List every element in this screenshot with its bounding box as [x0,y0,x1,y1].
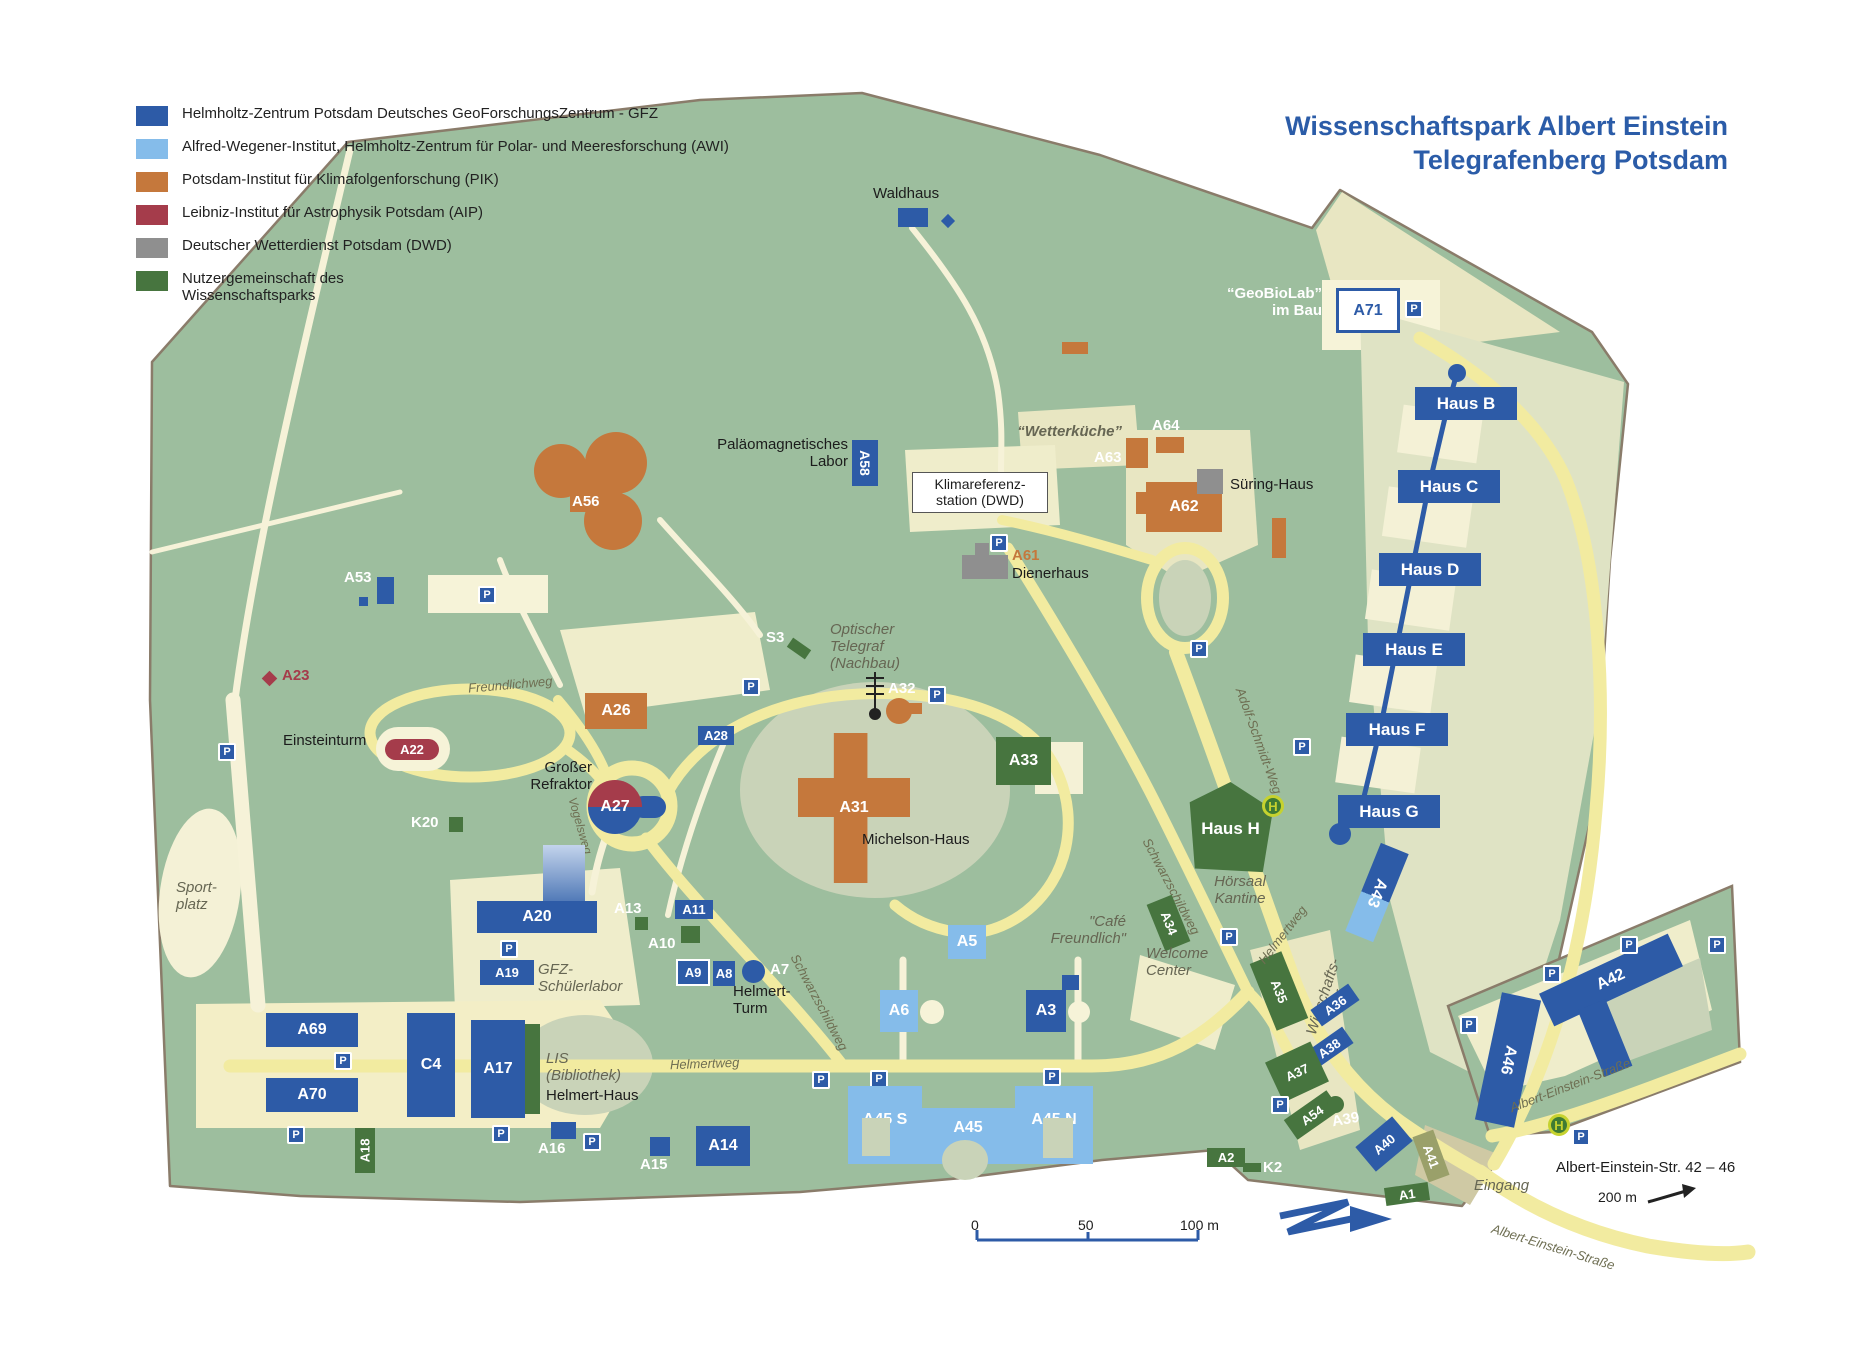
building-a11: A11 [675,900,713,919]
label-a61: A61 [1012,548,1040,565]
building-a3-annex [1062,975,1079,990]
parking-icon: P [1190,640,1208,658]
building-a26: A26 [585,693,647,729]
label-a13: A13 [614,901,642,918]
campus-map: Helmholtz-Zentrum Potsdam Deutsches GeoF… [0,0,1870,1360]
building-haus-g: Haus G [1338,795,1440,828]
building-a58: A58 [852,440,878,486]
label-hoersaal-kantine: Hörsaal Kantine [1205,874,1275,908]
building-a45n-court [1043,1118,1073,1158]
arrow-200m-icon [1648,1184,1696,1202]
legend: Helmholtz-Zentrum Potsdam Deutsches GeoF… [136,106,729,317]
building-a16 [551,1122,576,1139]
building-haus-c: Haus C [1398,470,1500,503]
label-dienerhaus: Dienerhaus [1012,566,1089,583]
legend-label: Leibniz-Institut für Astrophysik Potsdam… [182,205,483,222]
label-helmert-turm: Helmert- Turm [733,984,791,1018]
label-k2: K2 [1263,1160,1282,1177]
label-lis-bibliothek: LIS (Bibliothek) [546,1051,621,1085]
legend-swatch-gfz [136,106,168,126]
building-a32-stub [908,703,922,714]
label-sportplatz: Sport- platz [176,880,217,914]
label-albert-einstein-str-42-46: Albert-Einstein-Str. 42 – 46 [1556,1160,1735,1177]
building-a14: A14 [696,1126,750,1166]
label-geobiolab: “GeoBioLab” im Bau [1180,286,1322,320]
building-a71: A71 [1336,288,1400,333]
building-suering-dwd [1197,469,1223,494]
building-k20 [449,817,463,832]
label-a64: A64 [1152,418,1180,435]
bus-stop-icon: H [1262,795,1284,817]
parking-icon: P [583,1133,601,1151]
building-a19: A19 [480,960,534,985]
building-haus-d: Haus D [1379,553,1481,586]
parking-icon: P [928,686,946,704]
parking-icon: P [1043,1068,1061,1086]
building-k2 [1243,1163,1261,1172]
label-suering-haus: Süring-Haus [1230,477,1313,494]
legend-item: Deutscher Wetterdienst Potsdam (DWD) [136,238,729,258]
parking-icon: P [500,940,518,958]
page-title: Wissenschaftspark Albert Einstein Telegr… [1285,110,1728,178]
parking-icon: P [1405,300,1423,318]
bus-stop-icon: H [1548,1114,1570,1136]
legend-swatch-awi [136,139,168,159]
parking-icon: P [478,586,496,604]
road-label-helmertweg: Helmertweg [670,1056,740,1073]
label-wetterkueche: “Wetterküche” [1000,424,1122,441]
building-a13 [635,917,648,930]
building-a3: A3 [1026,990,1066,1032]
legend-label: Nutzergemeinschaft des Wissenschaftspark… [182,271,412,304]
legend-item: Nutzergemeinschaft des Wissenschaftspark… [136,271,729,304]
building-a33: A33 [996,737,1051,785]
label-klimareferenzstation: Klimareferenz- station (DWD) [912,472,1048,513]
parking-icon: P [218,743,236,761]
scale-100: 100 m [1180,1218,1219,1234]
building-a39 [1327,1096,1344,1113]
building-dienerhaus-annex [975,543,989,555]
label-a23: A23 [282,668,310,685]
label-eingang: Eingang [1474,1178,1529,1195]
building-haus-f: Haus F [1346,713,1448,746]
label-grosser-refraktor: Großer Refraktor [500,760,592,794]
building-a70: A70 [266,1078,358,1112]
label-palaeomagnetisches-labor: Paläomagnetisches Labor [700,437,848,471]
label-optischer-telegraf: Optischer Telegraf (Nachbau) [830,622,900,672]
building-haus-e: Haus E [1363,633,1465,666]
legend-label: Helmholtz-Zentrum Potsdam Deutsches GeoF… [182,106,658,123]
parking-icon: P [1620,936,1638,954]
building-a9: A9 [676,959,710,986]
legend-label: Potsdam-Institut für Klimafolgenforschun… [182,172,499,189]
north-arrow-icon [1280,1202,1392,1232]
parking-icon: P [492,1125,510,1143]
legend-swatch-pik [136,172,168,192]
label-welcome-center: Welcome Center [1146,946,1208,980]
building-a8: A8 [713,961,735,986]
building-a20: A20 [477,901,597,933]
scale-50: 50 [1078,1218,1094,1234]
label-michelson-haus: Michelson-Haus [862,832,970,849]
label-200m: 200 m [1598,1190,1637,1206]
label-a53: A53 [344,570,372,587]
building-a3-dome [1068,1001,1090,1023]
legend-item: Potsdam-Institut für Klimafolgenforschun… [136,172,729,192]
title-line2: Telegrafenberg Potsdam [1285,144,1728,178]
building-a28: A28 [698,726,734,745]
label-a7: A7 [770,962,789,979]
building-a62-wing [1136,492,1146,514]
label-waldhaus: Waldhaus [873,186,939,203]
label-a10: A10 [648,936,676,953]
legend-swatch-dwd [136,238,168,258]
label-s3: S3 [766,630,784,647]
building-a22: A22 [385,739,439,760]
title-line1: Wissenschaftspark Albert Einstein [1285,110,1728,144]
building-a10 [681,926,700,943]
building-a63 [1126,438,1148,468]
label-a32: A32 [888,681,916,698]
building-dienerhaus [962,555,1008,579]
label-a63: A63 [1094,450,1122,467]
building-a5: A5 [948,925,986,959]
building-a53-annex [359,597,368,606]
legend-swatch-nutzer [136,271,168,291]
building-a69: A69 [266,1013,358,1047]
parking-icon: P [1572,1128,1590,1146]
building-tower [543,845,585,905]
legend-item: Alfred-Wegener-Institut, Helmholtz-Zentr… [136,139,729,159]
label-einsteinturm: Einsteinturm [283,733,366,750]
legend-item: Helmholtz-Zentrum Potsdam Deutsches GeoF… [136,106,729,126]
building-a15 [650,1137,670,1156]
building-a27: A27 [588,780,642,834]
building-a64 [1156,437,1184,453]
parking-icon: P [990,534,1008,552]
legend-item: Leibniz-Institut für Astrophysik Potsdam… [136,205,729,225]
building-a7 [742,960,765,983]
label-a56: A56 [572,494,600,511]
building-pik-annex [1272,518,1286,558]
label-k20: K20 [411,815,439,832]
parking-icon: P [1271,1096,1289,1114]
parking-icon: P [1708,936,1726,954]
building-a45-arch [942,1140,988,1180]
scale-0: 0 [971,1218,979,1234]
building-a6: A6 [880,990,918,1032]
building-a53 [377,577,394,604]
label-gfz-schuelerlabor: GFZ- Schülerlabor [538,962,622,996]
parking-icon: P [1543,965,1561,983]
building-a2: A2 [1207,1148,1245,1167]
parking-icon: P [334,1052,352,1070]
building-a6-dome [920,1000,944,1024]
building-a17-green-wing [525,1024,540,1114]
label-helmert-haus: Helmert-Haus [546,1088,639,1105]
parking-icon: P [1460,1016,1478,1034]
label-a15: A15 [640,1157,668,1174]
building-a45s-court [862,1118,890,1156]
building-waldhaus [898,208,928,227]
building-a18: A18 [355,1128,375,1173]
parking-icon: P [287,1126,305,1144]
building-c4: C4 [407,1013,455,1117]
parking-icon: P [742,678,760,696]
building-haus-b: Haus B [1415,387,1517,420]
building-a17: A17 [471,1020,525,1118]
parking-icon: P [1220,928,1238,946]
legend-swatch-aip [136,205,168,225]
label-a16: A16 [538,1141,566,1158]
legend-label: Alfred-Wegener-Institut, Helmholtz-Zentr… [182,139,729,156]
legend-label: Deutscher Wetterdienst Potsdam (DWD) [182,238,452,255]
parking-icon: P [1293,738,1311,756]
building-pik-small [1062,342,1088,354]
parking-icon: P [812,1071,830,1089]
label-cafe-freundlich: "Café Freundlich" [1040,914,1126,948]
